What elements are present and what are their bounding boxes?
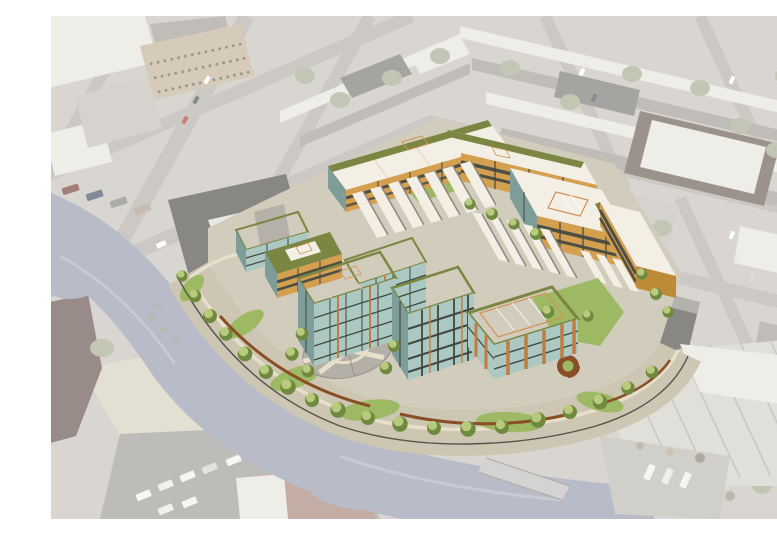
white-margin-left <box>40 16 51 519</box>
scene-canvas <box>40 16 777 519</box>
aerial-rendering-image: Oblique aerial photograph of a city neig… <box>40 16 777 519</box>
